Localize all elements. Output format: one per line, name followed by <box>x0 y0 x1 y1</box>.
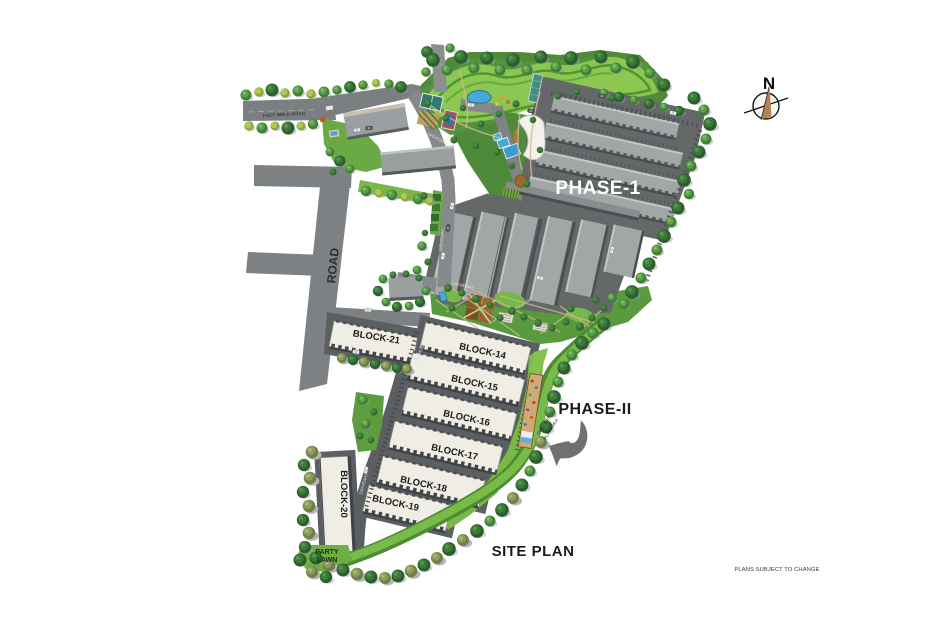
svg-text:PHASE-II: PHASE-II <box>558 401 631 418</box>
svg-text:PLANS SUBJECT TO CHANGE: PLANS SUBJECT TO CHANGE <box>734 567 819 573</box>
svg-text:LAWN: LAWN <box>317 557 338 564</box>
svg-text:SITE PLAN: SITE PLAN <box>492 543 575 560</box>
svg-text:PHASE-1: PHASE-1 <box>555 178 640 199</box>
svg-text:BLOCK-20: BLOCK-20 <box>338 470 349 518</box>
svg-text:PARTY: PARTY <box>315 549 339 556</box>
